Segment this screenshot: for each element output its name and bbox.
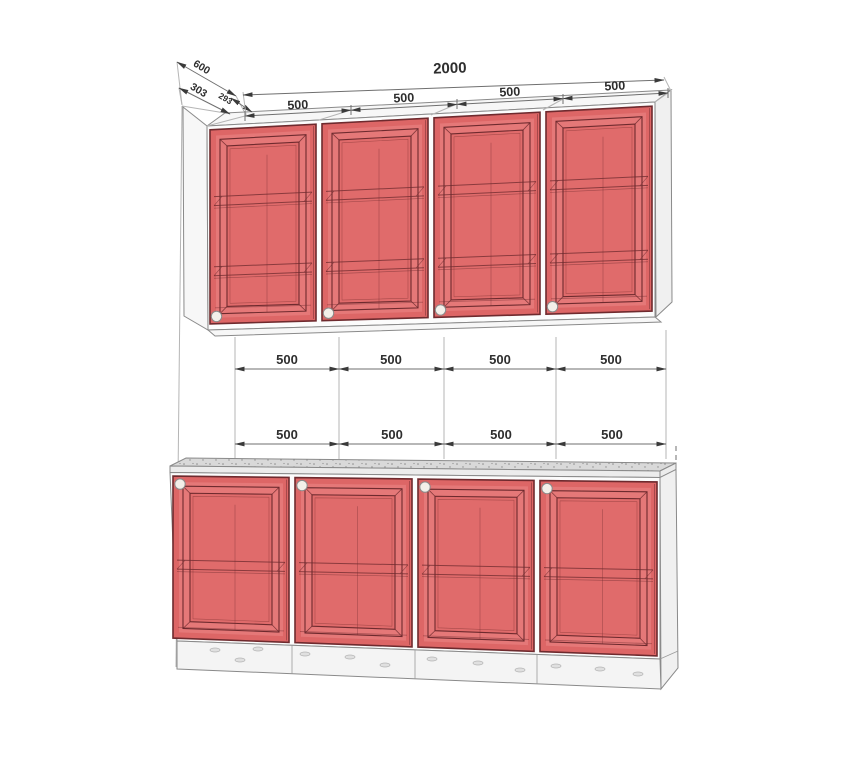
dim-low-500-3: 500 xyxy=(490,427,512,442)
door-knob xyxy=(175,479,185,489)
cabinet-door-upper-2 xyxy=(322,118,428,321)
dim-depth: 600 303 293 xyxy=(177,58,252,115)
cabinet-door-upper-1 xyxy=(210,124,316,324)
door-knob xyxy=(297,480,307,490)
upper-right-side xyxy=(655,90,672,317)
dim-low-500-4: 500 xyxy=(601,427,623,442)
dim-top-500-1: 500 xyxy=(287,97,309,112)
lower-cabinet-block xyxy=(170,446,678,689)
dim-middle-row: 500 500 500 500 xyxy=(235,352,666,369)
dim-lower-row: 500 500 500 500 xyxy=(235,427,666,444)
lower-right-side xyxy=(660,469,678,689)
dim-mid-500-2: 500 xyxy=(380,352,402,367)
door-knob xyxy=(435,305,445,315)
cabinet-door-lower-4 xyxy=(540,481,657,656)
dim-low-500-2: 500 xyxy=(381,427,403,442)
dim-mid-500-4: 500 xyxy=(600,352,622,367)
door-knob xyxy=(211,311,221,321)
dim-2000-label: 2000 xyxy=(433,59,467,77)
upper-cabinet-block xyxy=(183,90,672,336)
cabinet-door-lower-3 xyxy=(418,479,534,651)
cabinet-door-upper-4 xyxy=(546,106,652,314)
door-knob xyxy=(323,308,333,318)
cabinet-elevation-drawing: 600 303 293 2000 500 500 500 500 xyxy=(0,0,865,777)
dim-low-500-1: 500 xyxy=(276,427,298,442)
door-knob xyxy=(542,483,552,493)
dim-depth-600: 600 xyxy=(191,58,212,77)
dim-mid-500-3: 500 xyxy=(489,352,511,367)
drawing-canvas: 600 303 293 2000 500 500 500 500 xyxy=(0,0,865,777)
dim-depth-293: 293 xyxy=(217,90,235,106)
dim-top-500-4: 500 xyxy=(604,78,626,93)
door-knob xyxy=(420,482,430,492)
cabinet-door-lower-1 xyxy=(173,476,289,642)
cabinet-door-upper-3 xyxy=(434,112,540,317)
dim-depth-303: 303 xyxy=(188,81,209,100)
upper-left-side xyxy=(183,107,208,330)
cabinet-door-lower-2 xyxy=(295,478,412,647)
dim-top-500-2: 500 xyxy=(393,90,415,105)
dim-mid-500-1: 500 xyxy=(276,352,298,367)
dim-top-500-3: 500 xyxy=(499,84,521,99)
door-knob xyxy=(547,301,557,311)
